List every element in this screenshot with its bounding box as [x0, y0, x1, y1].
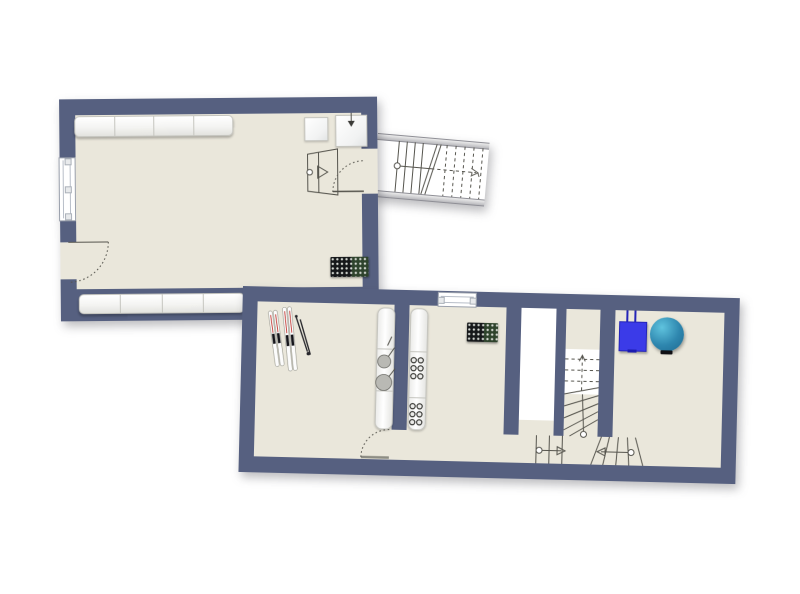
boiler-outlet	[627, 349, 636, 352]
tank-base	[660, 350, 672, 354]
appliance-small	[304, 117, 328, 141]
corridor-staircase	[372, 133, 489, 207]
floorplan-canvas	[0, 0, 800, 594]
cabinet-segment	[203, 294, 243, 312]
window-knob	[65, 213, 72, 220]
window-knob	[65, 186, 72, 193]
radiator	[467, 322, 498, 342]
upper-wall-top	[59, 97, 377, 116]
window-knob	[470, 298, 477, 305]
window-left	[59, 157, 77, 221]
cabinet-segment	[75, 117, 115, 136]
stair-upper-void	[564, 349, 599, 395]
appliance-with-arrow	[335, 115, 367, 147]
counter-divider	[410, 351, 426, 352]
cabinet-segment	[162, 294, 203, 312]
cabinet-segment	[194, 116, 233, 135]
counter-divider	[377, 348, 393, 349]
window-knob	[65, 158, 72, 165]
counter-left	[375, 307, 396, 429]
counter-divider	[409, 397, 425, 398]
lower-wall-right	[720, 298, 740, 484]
cabinet-segment	[115, 117, 155, 136]
cabinet-row-top	[74, 115, 233, 137]
window-top	[438, 292, 477, 308]
boiler	[619, 321, 648, 352]
cabinet-segment	[121, 294, 162, 312]
radiator	[330, 257, 368, 277]
counter-divider	[376, 390, 392, 391]
stairwell-wall-right	[597, 310, 615, 437]
stairwell-void	[519, 308, 557, 421]
counter-right	[408, 308, 429, 430]
cabinet-row-bottom	[79, 293, 245, 314]
cabinet-segment	[80, 295, 121, 313]
cabinet-segment	[154, 116, 194, 135]
window-knob	[438, 297, 445, 304]
door-opening-right	[361, 149, 377, 194]
door-opening-left	[60, 242, 76, 279]
lower-floor	[238, 286, 739, 484]
